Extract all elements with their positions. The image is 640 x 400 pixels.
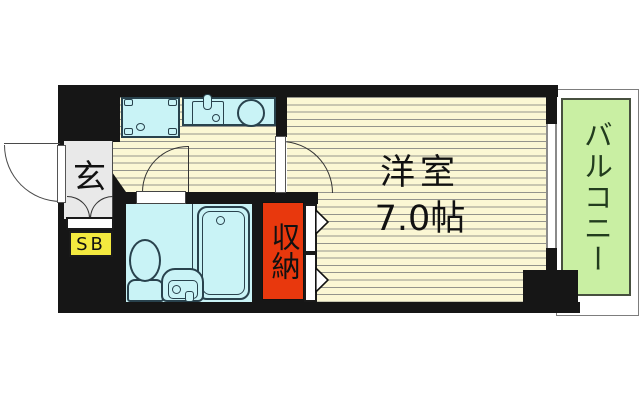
- entrance-door-arc: [4, 145, 61, 202]
- entrance-door-open-line: [4, 143, 60, 144]
- pan-corner: [168, 99, 177, 106]
- closet: 収納: [262, 202, 304, 300]
- closet-label: 収納: [267, 222, 299, 280]
- washbasin-drain: [172, 285, 181, 294]
- shoe-box-counter: [66, 217, 114, 230]
- wall-right-top: [546, 97, 557, 125]
- sink-drain: [212, 114, 220, 122]
- entrance-door-panel: [57, 145, 66, 203]
- main-room-name: 洋室: [300, 153, 540, 193]
- pan-corner: [124, 128, 133, 135]
- balcony: バルコニー: [561, 98, 631, 296]
- pan-drain: [136, 123, 145, 131]
- main-room-label: 洋室 7.0帖: [300, 153, 540, 239]
- bathtub-drain: [216, 216, 225, 225]
- main-room-area: 7.0帖: [300, 199, 540, 239]
- wall-bottom-right-block: [523, 270, 578, 313]
- pan-corner: [124, 99, 133, 106]
- wall-kitchen-right: [276, 97, 287, 137]
- bathroom-doorway: [136, 191, 186, 204]
- window: [546, 124, 557, 248]
- floor-plan: バルコニー 玄 SB 収納: [0, 0, 640, 400]
- balcony-label: バルコニー: [579, 120, 614, 275]
- wall-top-left-block: [58, 85, 120, 142]
- entrance-label: 玄: [66, 150, 113, 198]
- main-room-door-panel: [275, 136, 286, 193]
- bathroom-door-open-line: [188, 146, 189, 192]
- toilet-tank: [127, 279, 164, 302]
- toilet: [129, 239, 161, 282]
- wall-top: [58, 85, 558, 97]
- pan-corner: [168, 128, 177, 135]
- stove-burner: [237, 99, 265, 127]
- wall-bottom: [58, 302, 580, 313]
- washbasin-faucet: [185, 291, 194, 302]
- closet-door-arrow-icon: [315, 267, 329, 293]
- sink-faucet: [203, 94, 212, 110]
- shoe-box-label: SB: [69, 231, 113, 257]
- bathroom-partition-line: [192, 204, 193, 272]
